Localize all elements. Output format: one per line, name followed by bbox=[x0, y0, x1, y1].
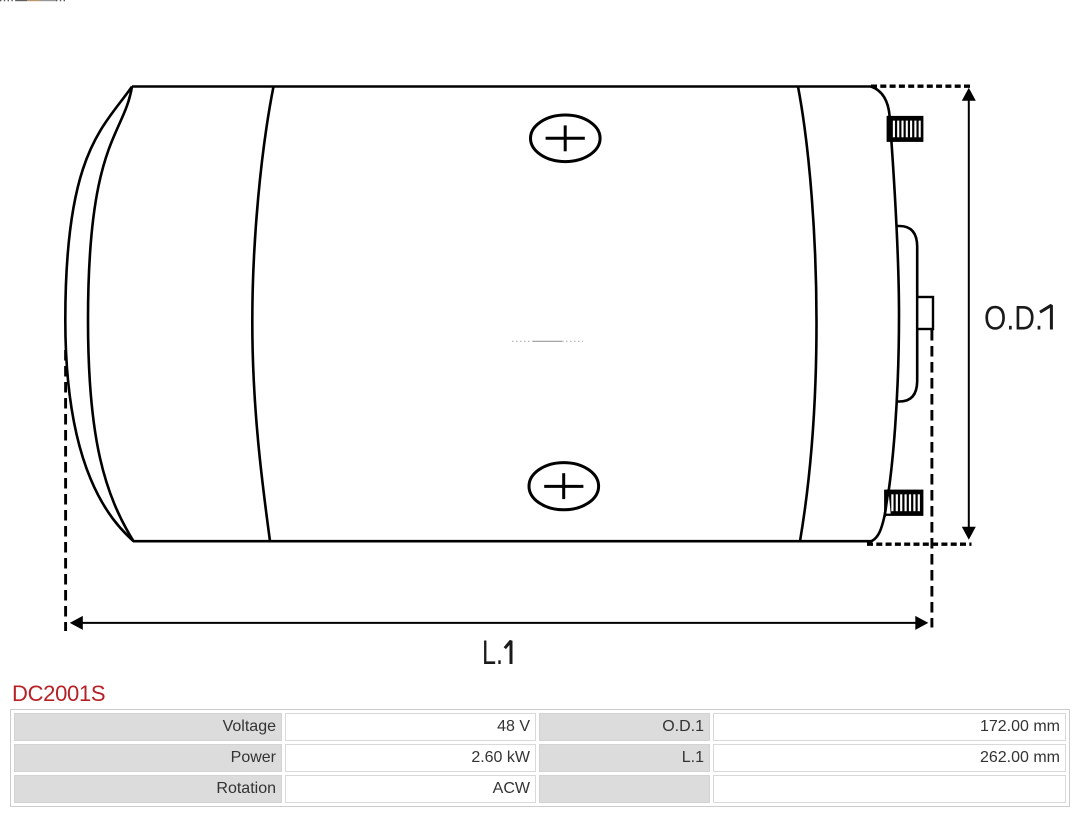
svg-text:O.D.: O.D. bbox=[984, 300, 1043, 338]
svg-text:L.: L. bbox=[482, 634, 503, 672]
